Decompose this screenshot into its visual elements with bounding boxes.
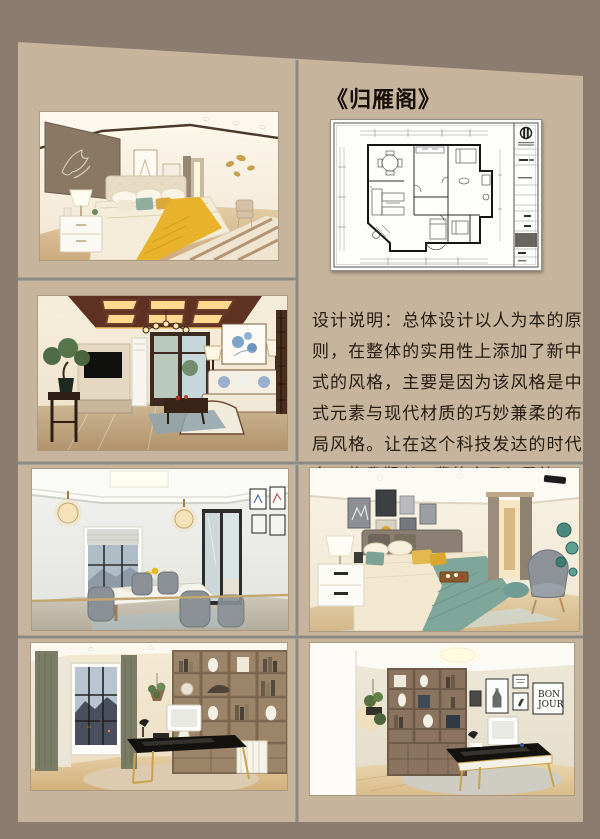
- bonjour-text-line1: BON: [538, 690, 560, 700]
- bonjour-frame: BON JOUR: [533, 683, 564, 714]
- study-one-illustration: [31, 643, 287, 790]
- living-room-illustration: [38, 296, 287, 450]
- teal-pouf: [503, 582, 529, 598]
- photo-living-room: [38, 296, 287, 450]
- dining-room-illustration: [32, 469, 288, 630]
- window-with-curtains: [35, 651, 137, 771]
- photo-study-two: BON JOUR: [310, 643, 574, 795]
- study-two-illustration: BON JOUR: [310, 643, 574, 795]
- air-conditioner: [132, 338, 147, 406]
- photo-dining-room: [32, 469, 288, 630]
- white-wall-column: [310, 647, 356, 795]
- floor-plan-sheet: [330, 119, 542, 271]
- guest-bedroom-illustration: [310, 468, 579, 631]
- project-title: 《归雁阁》: [326, 82, 576, 114]
- blue-floral-artwork: [222, 324, 266, 364]
- grid-divider-row3: [18, 635, 583, 639]
- design-note-body: 总体设计以人为本的原则，在整体的实用性上添加了新中式的风格，主要是因为该风格是中…: [312, 311, 582, 486]
- floor-plan-drawing: [330, 119, 542, 271]
- grid-divider-vertical: [295, 60, 299, 822]
- design-note-label: 设计说明：: [312, 311, 402, 331]
- photo-study-one: [31, 643, 287, 790]
- grid-divider-row1: [18, 277, 296, 281]
- bookshelf: [388, 669, 466, 775]
- photo-guest-bedroom: [310, 468, 579, 631]
- window-curtains: [486, 492, 534, 580]
- balcony-doors: [150, 332, 210, 406]
- master-bedroom-illustration: [40, 112, 278, 260]
- photo-master-bedroom: [40, 112, 278, 260]
- bed-tray: [440, 572, 468, 582]
- design-note: 设计说明：总体设计以人为本的原则，在整体的实用性上添加了新中式的风格，主要是因为…: [312, 306, 582, 476]
- bonjour-text-line2: JOUR: [537, 700, 564, 710]
